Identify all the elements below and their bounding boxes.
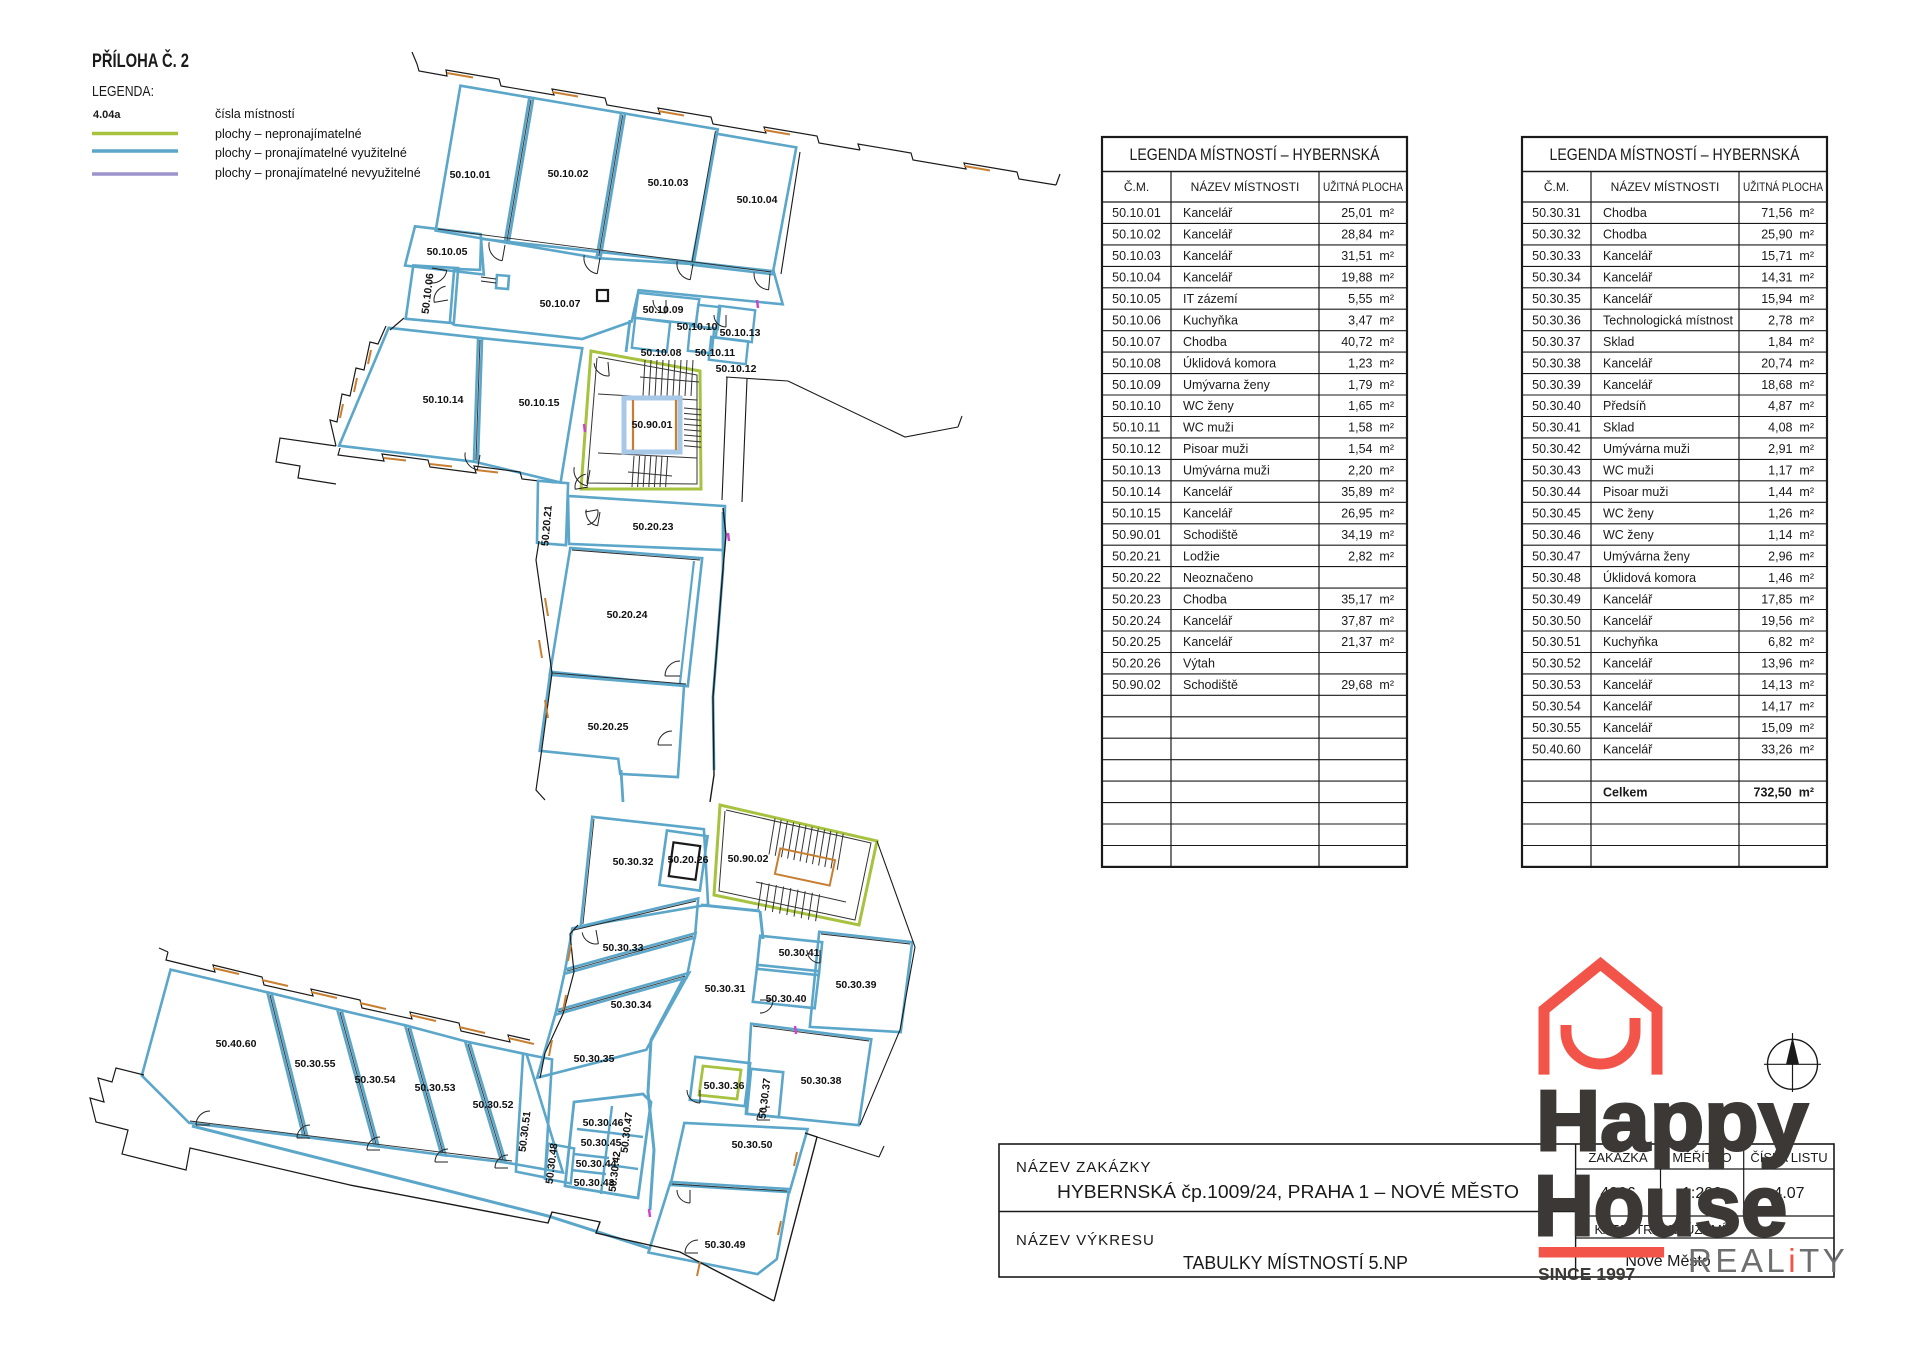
svg-text:Předsíň: Předsíň xyxy=(1603,399,1646,413)
svg-text:Kancelář: Kancelář xyxy=(1183,228,1233,242)
svg-text:Kancelář: Kancelář xyxy=(1183,485,1233,499)
svg-text:NÁZEV ZAKÁZKY: NÁZEV ZAKÁZKY xyxy=(1016,1159,1152,1176)
svg-text:Kancelář: Kancelář xyxy=(1603,271,1653,285)
svg-text:Kancelář: Kancelář xyxy=(1603,614,1653,628)
svg-text:1,44 m²: 1,44 m² xyxy=(1768,485,1814,499)
svg-text:HYBERNSKÁ čp.1009/24, PRAHA: HYBERNSKÁ čp.1009/24, PRAHA 1 – NOVÉ MĚS… xyxy=(1057,1182,1519,1202)
svg-text:2,91 m²: 2,91 m² xyxy=(1768,442,1814,456)
svg-text:15,09 m²: 15,09 m² xyxy=(1761,721,1814,735)
svg-text:50.10.03: 50.10.03 xyxy=(1112,249,1161,263)
svg-text:WC ženy: WC ženy xyxy=(1603,507,1654,521)
svg-text:Pisoar muži: Pisoar muži xyxy=(1183,442,1248,456)
svg-text:6,82 m²: 6,82 m² xyxy=(1768,635,1814,649)
svg-text:1,79 m²: 1,79 m² xyxy=(1348,378,1394,392)
svg-text:25,01 m²: 25,01 m² xyxy=(1341,206,1394,220)
svg-text:50.30.34: 50.30.34 xyxy=(611,999,652,1011)
svg-text:Výtah: Výtah xyxy=(1183,657,1215,671)
svg-text:50.20.25: 50.20.25 xyxy=(588,721,629,733)
svg-text:Č.M.: Č.M. xyxy=(1124,179,1149,194)
svg-text:TABULKY MÍSTNOSTÍ 5.NP: TABULKY MÍSTNOSTÍ 5.NP xyxy=(1183,1253,1408,1273)
svg-text:Kancelář: Kancelář xyxy=(1603,678,1653,692)
svg-text:2,82 m²: 2,82 m² xyxy=(1348,549,1394,563)
svg-text:50.30.34: 50.30.34 xyxy=(1532,271,1581,285)
svg-text:50.30.43: 50.30.43 xyxy=(1532,464,1581,478)
svg-text:50.10.06: 50.10.06 xyxy=(1112,313,1161,327)
svg-text:50.30.37: 50.30.37 xyxy=(757,1077,774,1119)
svg-text:4,08 m²: 4,08 m² xyxy=(1768,421,1814,435)
svg-text:50.30.54: 50.30.54 xyxy=(355,1074,396,1086)
svg-text:Sklad: Sklad xyxy=(1603,421,1634,435)
svg-text:LEGENDA MÍSTNOSTÍ – HYBERNS: LEGENDA MÍSTNOSTÍ – HYBERNSKÁ xyxy=(1550,145,1801,164)
svg-text:50.20.23: 50.20.23 xyxy=(1112,592,1161,606)
svg-text:31,51 m²: 31,51 m² xyxy=(1341,249,1394,263)
svg-text:Kancelář: Kancelář xyxy=(1603,743,1653,757)
svg-text:50.10.04: 50.10.04 xyxy=(1112,271,1161,285)
svg-text:Kancelář: Kancelář xyxy=(1603,378,1653,392)
svg-text:50.90.02: 50.90.02 xyxy=(1112,678,1161,692)
svg-text:50.10.01: 50.10.01 xyxy=(1112,206,1161,220)
svg-text:50.30.47: 50.30.47 xyxy=(1532,549,1581,563)
svg-text:50.30.49: 50.30.49 xyxy=(705,1239,746,1251)
svg-text:Kancelář: Kancelář xyxy=(1603,356,1653,370)
svg-text:Umývarna ženy: Umývarna ženy xyxy=(1183,378,1271,392)
svg-text:34,19 m²: 34,19 m² xyxy=(1341,528,1394,542)
svg-text:50.30.48: 50.30.48 xyxy=(1532,571,1581,585)
svg-text:50.30.36: 50.30.36 xyxy=(704,1080,745,1092)
svg-text:17,85 m²: 17,85 m² xyxy=(1761,592,1814,606)
svg-text:NÁZEV VÝKRESU: NÁZEV VÝKRESU xyxy=(1016,1232,1155,1249)
svg-text:1,65 m²: 1,65 m² xyxy=(1348,399,1394,413)
svg-text:Chodba: Chodba xyxy=(1183,592,1227,606)
svg-text:50.30.42: 50.30.42 xyxy=(607,1150,624,1192)
svg-text:50.90.01: 50.90.01 xyxy=(1112,528,1161,542)
svg-text:50.30.52: 50.30.52 xyxy=(473,1099,514,1111)
svg-text:Chodba: Chodba xyxy=(1183,335,1227,349)
svg-text:25,90 m²: 25,90 m² xyxy=(1761,228,1814,242)
svg-text:50.30.41: 50.30.41 xyxy=(1532,421,1581,435)
svg-text:UŽITNÁ PLOCHA: UŽITNÁ PLOCHA xyxy=(1323,179,1403,194)
svg-text:Kancelář: Kancelář xyxy=(1183,206,1233,220)
svg-text:Schodiště: Schodiště xyxy=(1183,528,1238,542)
svg-text:5,55 m²: 5,55 m² xyxy=(1348,292,1394,306)
svg-text:1,84 m²: 1,84 m² xyxy=(1768,335,1814,349)
svg-text:Pisoar muži: Pisoar muži xyxy=(1603,485,1668,499)
svg-text:50.30.38: 50.30.38 xyxy=(801,1075,842,1087)
svg-text:37,87 m²: 37,87 m² xyxy=(1341,614,1394,628)
svg-text:Č.M.: Č.M. xyxy=(1544,179,1569,194)
svg-text:50.20.21: 50.20.21 xyxy=(1112,549,1161,563)
svg-text:50.30.32: 50.30.32 xyxy=(1532,228,1581,242)
svg-text:Chodba: Chodba xyxy=(1603,206,1647,220)
svg-text:50.30.46: 50.30.46 xyxy=(583,1117,624,1129)
svg-text:50.30.45: 50.30.45 xyxy=(1532,507,1581,521)
svg-text:Happy: Happy xyxy=(1536,1074,1808,1169)
svg-text:50.10.13: 50.10.13 xyxy=(720,327,761,339)
svg-text:Chodba: Chodba xyxy=(1603,228,1647,242)
svg-text:50.30.55: 50.30.55 xyxy=(1532,721,1581,735)
svg-text:50.20.23: 50.20.23 xyxy=(633,521,674,533)
svg-text:Kancelář: Kancelář xyxy=(1603,657,1653,671)
svg-text:50.30.54: 50.30.54 xyxy=(1532,700,1581,714)
svg-text:50.20.24: 50.20.24 xyxy=(607,609,648,621)
svg-text:Kancelář: Kancelář xyxy=(1603,249,1653,263)
svg-text:50.10.02: 50.10.02 xyxy=(1112,228,1161,242)
svg-text:50.30.45: 50.30.45 xyxy=(581,1137,622,1149)
svg-text:1,54 m²: 1,54 m² xyxy=(1348,442,1394,456)
svg-text:26,95 m²: 26,95 m² xyxy=(1341,507,1394,521)
svg-text:50.10.04: 50.10.04 xyxy=(737,194,778,206)
svg-text:14,13 m²: 14,13 m² xyxy=(1761,678,1814,692)
svg-text:1,14 m²: 1,14 m² xyxy=(1768,528,1814,542)
svg-text:50.30.33: 50.30.33 xyxy=(1532,249,1581,263)
svg-text:50.30.39: 50.30.39 xyxy=(1532,378,1581,392)
svg-text:plochy – nepronajímatelné: plochy – nepronajímatelné xyxy=(215,127,362,141)
svg-text:50.10.07: 50.10.07 xyxy=(1112,335,1161,349)
svg-text:50.10.09: 50.10.09 xyxy=(1112,378,1161,392)
svg-text:50.30.40: 50.30.40 xyxy=(1532,399,1581,413)
svg-text:Úklidová komora: Úklidová komora xyxy=(1183,355,1276,370)
svg-text:14,31 m²: 14,31 m² xyxy=(1761,271,1814,285)
svg-text:18,68 m²: 18,68 m² xyxy=(1761,378,1814,392)
svg-text:50.30.50: 50.30.50 xyxy=(1532,614,1581,628)
svg-text:50.10.05: 50.10.05 xyxy=(427,246,468,258)
svg-text:50.30.40: 50.30.40 xyxy=(766,993,807,1005)
svg-text:28,84 m²: 28,84 m² xyxy=(1341,228,1394,242)
svg-text:3,47 m²: 3,47 m² xyxy=(1348,313,1394,327)
svg-text:50.10.05: 50.10.05 xyxy=(1112,292,1161,306)
svg-text:50.20.24: 50.20.24 xyxy=(1112,614,1161,628)
svg-text:50.30.41: 50.30.41 xyxy=(779,947,820,959)
svg-text:50.20.26: 50.20.26 xyxy=(1112,657,1161,671)
svg-text:Kuchyňka: Kuchyňka xyxy=(1603,635,1658,649)
svg-text:50.10.14: 50.10.14 xyxy=(1112,485,1161,499)
svg-text:50.10.03: 50.10.03 xyxy=(648,177,689,189)
svg-text:50.30.53: 50.30.53 xyxy=(1532,678,1581,692)
svg-text:15,71 m²: 15,71 m² xyxy=(1761,249,1814,263)
svg-text:50.10.15: 50.10.15 xyxy=(1112,507,1161,521)
svg-text:50.30.32: 50.30.32 xyxy=(613,856,654,868)
svg-text:Úklidová komora: Úklidová komora xyxy=(1603,570,1696,585)
svg-text:29,68 m²: 29,68 m² xyxy=(1341,678,1394,692)
svg-text:50.30.44: 50.30.44 xyxy=(1532,485,1581,499)
svg-text:REALiTY: REALiTY xyxy=(1688,1242,1848,1279)
svg-text:Kancelář: Kancelář xyxy=(1183,271,1233,285)
svg-text:2,96 m²: 2,96 m² xyxy=(1768,549,1814,563)
svg-text:732,50 m²: 732,50 m² xyxy=(1754,785,1814,799)
svg-text:Kancelář: Kancelář xyxy=(1603,721,1653,735)
svg-text:50.30.31: 50.30.31 xyxy=(705,983,746,995)
svg-text:Kancelář: Kancelář xyxy=(1183,507,1233,521)
svg-text:PŘÍLOHA Č. 2: PŘÍLOHA Č. 2 xyxy=(92,50,189,72)
svg-text:50.10.02: 50.10.02 xyxy=(548,168,589,180)
svg-text:50.40.60: 50.40.60 xyxy=(1532,743,1581,757)
svg-text:Schodiště: Schodiště xyxy=(1183,678,1238,692)
svg-text:50.30.53: 50.30.53 xyxy=(415,1082,456,1094)
svg-text:50.30.33: 50.30.33 xyxy=(603,942,644,954)
svg-text:50.30.39: 50.30.39 xyxy=(836,979,877,991)
svg-text:50.30.31: 50.30.31 xyxy=(1532,206,1581,220)
svg-text:Umývárna muži: Umývárna muži xyxy=(1603,442,1690,456)
svg-text:Umývárna muži: Umývárna muži xyxy=(1183,464,1270,478)
svg-text:Celkem: Celkem xyxy=(1603,785,1647,799)
svg-text:50.10.12: 50.10.12 xyxy=(716,363,757,375)
svg-text:71,56 m²: 71,56 m² xyxy=(1761,206,1814,220)
svg-text:House: House xyxy=(1534,1159,1787,1254)
svg-text:2,78 m²: 2,78 m² xyxy=(1768,313,1814,327)
svg-text:1,46 m²: 1,46 m² xyxy=(1768,571,1814,585)
svg-text:50.10.01: 50.10.01 xyxy=(450,169,491,181)
svg-text:50.30.46: 50.30.46 xyxy=(1532,528,1581,542)
svg-text:1,58 m²: 1,58 m² xyxy=(1348,421,1394,435)
svg-text:50.40.60: 50.40.60 xyxy=(216,1038,257,1050)
svg-text:50.30.51: 50.30.51 xyxy=(1532,635,1581,649)
svg-text:Umývárna ženy: Umývárna ženy xyxy=(1603,549,1691,563)
svg-text:50.30.36: 50.30.36 xyxy=(1532,313,1581,327)
svg-text:33,26 m²: 33,26 m² xyxy=(1761,743,1814,757)
svg-text:WC ženy: WC ženy xyxy=(1183,399,1234,413)
svg-text:Kancelář: Kancelář xyxy=(1603,700,1653,714)
svg-text:13,96 m²: 13,96 m² xyxy=(1761,657,1814,671)
svg-text:WC muži: WC muži xyxy=(1603,464,1654,478)
svg-text:50.20.22: 50.20.22 xyxy=(1112,571,1161,585)
svg-text:Sklad: Sklad xyxy=(1603,335,1634,349)
svg-text:50.10.10: 50.10.10 xyxy=(1112,399,1161,413)
svg-text:50.30.50: 50.30.50 xyxy=(732,1139,773,1151)
svg-text:50.30.37: 50.30.37 xyxy=(1532,335,1581,349)
svg-text:15,94 m²: 15,94 m² xyxy=(1761,292,1814,306)
svg-text:50.10.08: 50.10.08 xyxy=(1112,356,1161,370)
svg-text:50.10.06: 50.10.06 xyxy=(420,272,437,314)
svg-text:2,20 m²: 2,20 m² xyxy=(1348,464,1394,478)
svg-text:LEGENDA:: LEGENDA: xyxy=(92,83,154,100)
svg-text:WC muži: WC muži xyxy=(1183,421,1234,435)
svg-text:Neoznačeno: Neoznačeno xyxy=(1183,571,1253,585)
svg-text:1,26 m²: 1,26 m² xyxy=(1768,507,1814,521)
svg-text:Kancelář: Kancelář xyxy=(1603,592,1653,606)
svg-text:35,17 m²: 35,17 m² xyxy=(1341,592,1394,606)
svg-text:50.30.42: 50.30.42 xyxy=(1532,442,1581,456)
svg-text:Technologická místnost: Technologická místnost xyxy=(1603,313,1733,327)
svg-text:19,88 m²: 19,88 m² xyxy=(1341,271,1394,285)
svg-text:50.30.38: 50.30.38 xyxy=(1532,356,1581,370)
svg-text:1,17 m²: 1,17 m² xyxy=(1768,464,1814,478)
svg-text:Kancelář: Kancelář xyxy=(1603,292,1653,306)
svg-text:50.30.52: 50.30.52 xyxy=(1532,657,1581,671)
svg-text:50.10.10: 50.10.10 xyxy=(677,321,718,333)
svg-text:50.30.55: 50.30.55 xyxy=(295,1058,336,1070)
svg-text:50.10.15: 50.10.15 xyxy=(519,397,560,409)
svg-text:plochy – pronajímatelné vyu: plochy – pronajímatelné využitelné xyxy=(215,146,407,160)
svg-text:50.30.35: 50.30.35 xyxy=(574,1053,615,1065)
svg-text:50.10.11: 50.10.11 xyxy=(695,347,735,359)
svg-text:Kancelář: Kancelář xyxy=(1183,249,1233,263)
svg-text:WC ženy: WC ženy xyxy=(1603,528,1654,542)
svg-text:čísla místností: čísla místností xyxy=(215,107,295,121)
svg-text:NÁZEV MÍSTNOSTI: NÁZEV MÍSTNOSTI xyxy=(1611,179,1720,194)
svg-text:50.20.26: 50.20.26 xyxy=(668,854,709,866)
svg-text:40,72 m²: 40,72 m² xyxy=(1341,335,1394,349)
svg-text:1,23 m²: 1,23 m² xyxy=(1348,356,1394,370)
svg-text:50.30.49: 50.30.49 xyxy=(1532,592,1581,606)
svg-text:4.04a: 4.04a xyxy=(93,109,121,121)
svg-text:35,89 m²: 35,89 m² xyxy=(1341,485,1394,499)
svg-text:50.10.12: 50.10.12 xyxy=(1112,442,1161,456)
svg-text:20,74 m²: 20,74 m² xyxy=(1761,356,1814,370)
svg-text:50.10.08: 50.10.08 xyxy=(641,347,682,359)
svg-text:Lodžie: Lodžie xyxy=(1183,549,1220,563)
svg-text:50.20.21: 50.20.21 xyxy=(539,505,555,547)
svg-text:UŽITNÁ PLOCHA: UŽITNÁ PLOCHA xyxy=(1743,179,1823,194)
svg-text:50.10.13: 50.10.13 xyxy=(1112,464,1161,478)
svg-text:21,37 m²: 21,37 m² xyxy=(1341,635,1394,649)
svg-text:SINCE 1997: SINCE 1997 xyxy=(1538,1264,1635,1284)
svg-text:19,56 m²: 19,56 m² xyxy=(1761,614,1814,628)
svg-text:Kancelář: Kancelář xyxy=(1183,614,1233,628)
svg-text:50.90.01: 50.90.01 xyxy=(632,419,673,431)
svg-text:plochy – pronajímatelné nev: plochy – pronajímatelné nevyužitelné xyxy=(215,166,421,180)
svg-text:14,17 m²: 14,17 m² xyxy=(1761,700,1814,714)
svg-text:4,87 m²: 4,87 m² xyxy=(1768,399,1814,413)
svg-text:Kancelář: Kancelář xyxy=(1183,635,1233,649)
svg-text:50.10.09: 50.10.09 xyxy=(643,304,684,316)
svg-text:Kuchyňka: Kuchyňka xyxy=(1183,313,1238,327)
svg-text:IT zázemí: IT zázemí xyxy=(1183,292,1238,306)
svg-text:50.10.07: 50.10.07 xyxy=(540,298,581,310)
svg-text:NÁZEV MÍSTNOSTI: NÁZEV MÍSTNOSTI xyxy=(1191,179,1300,194)
svg-text:50.20.25: 50.20.25 xyxy=(1112,635,1161,649)
svg-text:50.90.02: 50.90.02 xyxy=(728,853,769,865)
svg-text:50.30.35: 50.30.35 xyxy=(1532,292,1581,306)
svg-text:50.10.11: 50.10.11 xyxy=(1113,421,1161,435)
svg-text:LEGENDA MÍSTNOSTÍ – HYBERNS: LEGENDA MÍSTNOSTÍ – HYBERNSKÁ xyxy=(1130,145,1381,164)
svg-text:50.10.14: 50.10.14 xyxy=(423,394,464,406)
